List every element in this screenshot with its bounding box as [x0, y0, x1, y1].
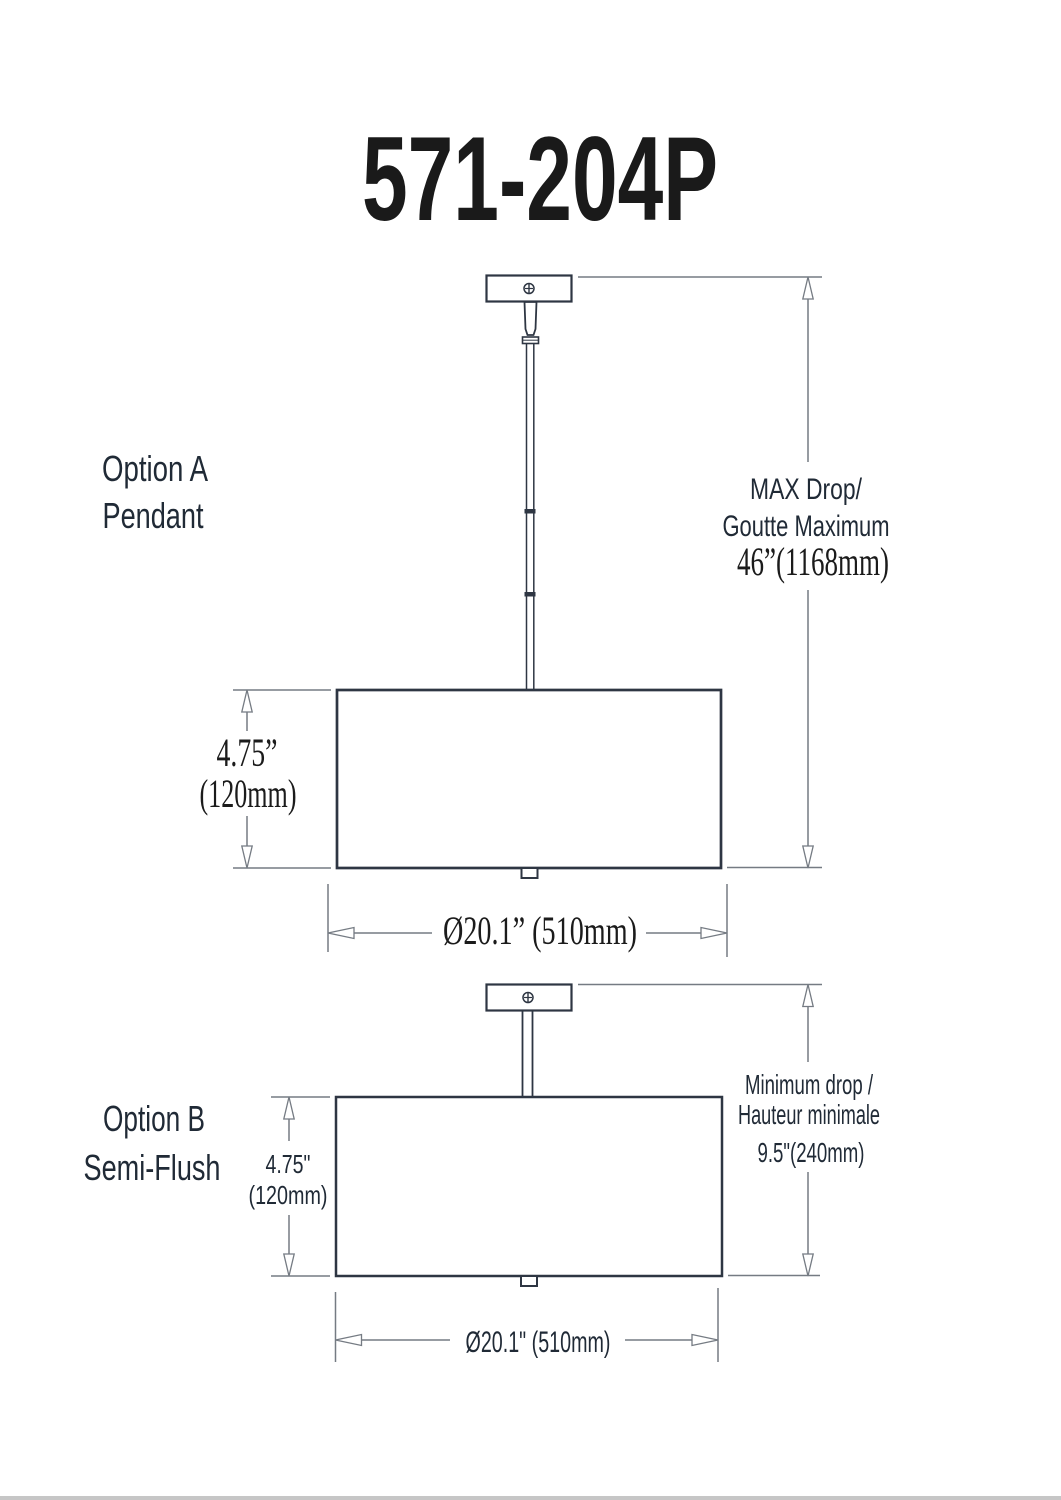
drum-shade [336, 1097, 722, 1276]
max-drop-value: 46”(1168mm) [737, 539, 889, 584]
shade-diameter-value: Ø20.1" (510mm) [466, 1326, 611, 1359]
arrow-left-icon [336, 1335, 362, 1346]
rod-joint-upper [525, 509, 536, 514]
page-title: 571-204P [362, 112, 718, 246]
min-drop-value: 9.5"(240mm) [758, 1137, 865, 1168]
arrow-up-icon [284, 1097, 294, 1119]
max-drop-label-line1: MAX Drop/ [750, 473, 862, 506]
spec-sheet: 571-204P [0, 0, 1061, 1500]
shade-height-value-mm: (120mm) [200, 771, 297, 816]
rod-joint-lower [525, 592, 536, 597]
option-a-label-line1: Option A [102, 448, 208, 489]
screw-icon [524, 284, 534, 294]
option-b: Option B Semi-Flush Minimum drop / Haute… [84, 985, 881, 1363]
page-bottom-edge [0, 1496, 1061, 1500]
screw-icon [523, 993, 533, 1003]
spec-diagram: 571-204P [0, 0, 1061, 1500]
shade-height-value-inches: 4.75” [217, 730, 278, 775]
option-a: Option A Pendant MAX Drop/ Goutte Maximu… [102, 276, 890, 958]
arrow-down-icon [803, 1254, 813, 1276]
min-drop-label-line1: Minimum drop / [745, 1069, 873, 1100]
arrow-right-icon [701, 928, 727, 939]
arrow-right-icon [692, 1335, 718, 1346]
shade-height-value-mm: (120mm) [249, 1180, 328, 1210]
option-a-label-line2: Pendant [103, 495, 204, 536]
finial [522, 868, 538, 878]
shade-diameter-value: Ø20.1” (510mm) [443, 908, 637, 953]
shade-height-value-inches: 4.75" [266, 1149, 311, 1179]
arrow-down-icon [242, 846, 252, 868]
arrow-left-icon [328, 928, 354, 939]
finial [521, 1276, 537, 1286]
drum-shade [337, 690, 721, 868]
option-a-fixture [337, 276, 721, 879]
arrow-down-icon [284, 1254, 294, 1276]
option-b-label-line1: Option B [103, 1098, 205, 1139]
min-drop-label-line2: Hauteur minimale [738, 1099, 880, 1130]
arrow-up-icon [803, 985, 813, 1007]
option-b-fixture [336, 985, 722, 1287]
stem-socket [525, 302, 537, 335]
arrow-up-icon [242, 690, 252, 712]
arrow-down-icon [803, 846, 813, 868]
arrow-up-icon [803, 277, 813, 299]
option-b-label-line2: Semi-Flush [84, 1147, 221, 1188]
